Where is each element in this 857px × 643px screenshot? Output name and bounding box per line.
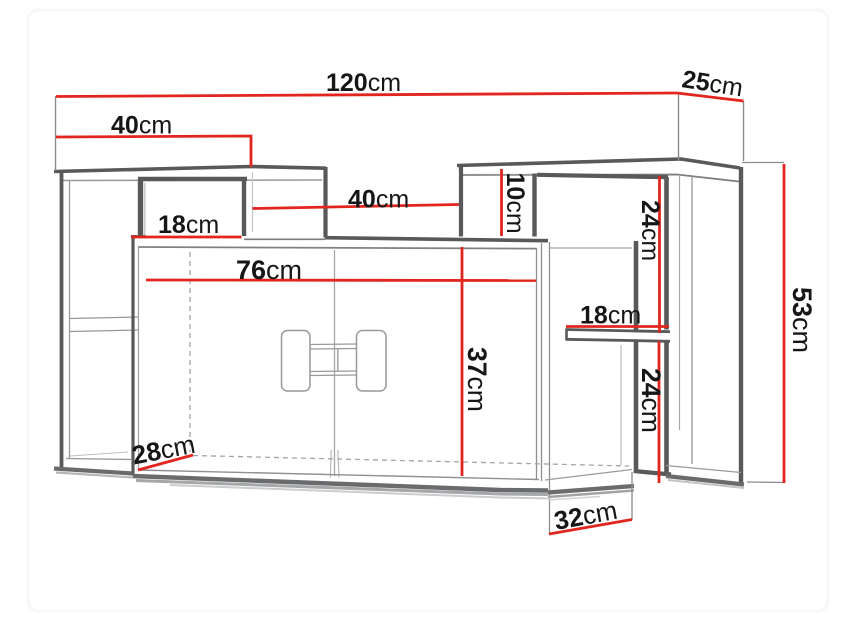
svg-text:120cm: 120cm xyxy=(326,69,401,97)
svg-text:10cm: 10cm xyxy=(501,173,529,234)
svg-text:24cm: 24cm xyxy=(636,200,664,261)
svg-text:76cm: 76cm xyxy=(236,255,302,285)
svg-text:40cm: 40cm xyxy=(348,186,409,214)
svg-text:24cm: 24cm xyxy=(636,368,666,433)
svg-text:18cm: 18cm xyxy=(158,211,219,239)
svg-text:18cm: 18cm xyxy=(580,302,641,330)
svg-text:37cm: 37cm xyxy=(462,347,492,412)
svg-text:40cm: 40cm xyxy=(111,112,172,140)
svg-text:53cm: 53cm xyxy=(787,287,817,353)
